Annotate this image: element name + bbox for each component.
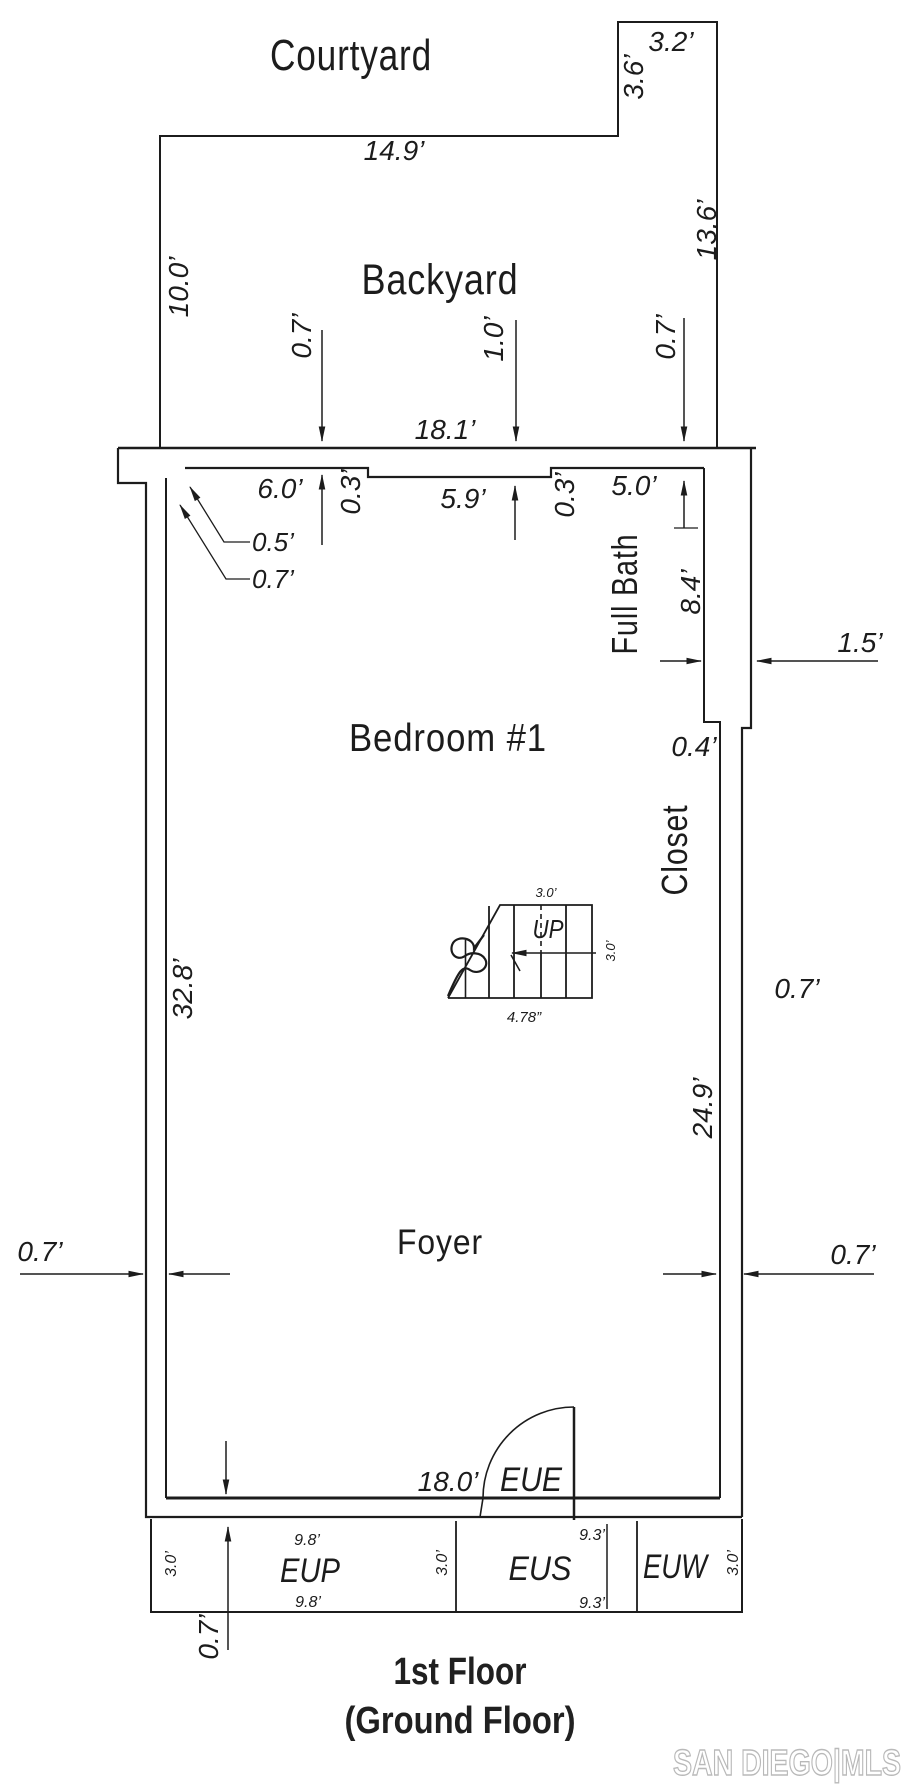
- svg-text:EUS: EUS: [509, 1550, 572, 1588]
- svg-text:0.7’: 0.7’: [830, 1239, 876, 1270]
- svg-text:0.7’: 0.7’: [286, 313, 317, 359]
- svg-text:3.0’: 3.0’: [725, 1550, 742, 1576]
- svg-text:EUE: EUE: [500, 1461, 562, 1499]
- svg-text:18.0’: 18.0’: [418, 1466, 479, 1497]
- svg-text:EUP: EUP: [280, 1552, 340, 1590]
- svg-text:5.9’: 5.9’: [440, 483, 486, 514]
- svg-text:3.0’: 3.0’: [434, 1550, 451, 1576]
- svg-text:3.6’: 3.6’: [618, 54, 649, 100]
- svg-text:0.7’: 0.7’: [774, 973, 820, 1004]
- svg-text:0.3’: 0.3’: [549, 472, 580, 518]
- svg-text:3.0’: 3.0’: [603, 939, 618, 961]
- svg-text:0.4’: 0.4’: [671, 731, 717, 762]
- svg-text:0.7’: 0.7’: [650, 314, 681, 360]
- svg-text:0.3’: 0.3’: [335, 469, 366, 515]
- svg-text:3.0’: 3.0’: [536, 885, 558, 900]
- svg-text:Full Bath: Full Bath: [604, 534, 645, 655]
- svg-text:9.3’: 9.3’: [579, 1595, 605, 1612]
- svg-text:24.9’: 24.9’: [687, 1077, 718, 1139]
- svg-text:0.5’: 0.5’: [252, 527, 295, 557]
- svg-text:1.5’: 1.5’: [837, 627, 883, 658]
- svg-text:0.7’: 0.7’: [252, 564, 295, 594]
- svg-text:3.2’: 3.2’: [648, 26, 694, 57]
- svg-text:SAN DIEGO|MLS: SAN DIEGO|MLS: [673, 1742, 901, 1784]
- svg-text:EUW: EUW: [643, 1548, 709, 1586]
- svg-text:4.78”: 4.78”: [507, 1009, 542, 1026]
- svg-text:13.6’: 13.6’: [691, 199, 722, 260]
- svg-text:(Ground Floor): (Ground Floor): [345, 1700, 576, 1742]
- svg-text:14.9’: 14.9’: [364, 135, 425, 166]
- svg-text:5.0’: 5.0’: [611, 470, 657, 501]
- svg-text:32.8’: 32.8’: [167, 958, 198, 1019]
- svg-text:UP: UP: [533, 914, 565, 944]
- svg-text:9.3’: 9.3’: [579, 1527, 605, 1544]
- svg-text:9.8’: 9.8’: [295, 1594, 321, 1611]
- svg-text:Foyer: Foyer: [397, 1223, 483, 1262]
- svg-text:1st Floor: 1st Floor: [394, 1651, 527, 1693]
- svg-text:1.0’: 1.0’: [478, 316, 509, 362]
- svg-text:6.0’: 6.0’: [257, 473, 303, 504]
- svg-text:Closet: Closet: [654, 805, 695, 896]
- svg-text:0.7’: 0.7’: [193, 1614, 224, 1660]
- svg-text:Backyard: Backyard: [362, 256, 519, 304]
- svg-text:0.7’: 0.7’: [17, 1236, 63, 1267]
- svg-text:Bedroom #1: Bedroom #1: [349, 717, 547, 760]
- svg-text:10.0’: 10.0’: [163, 256, 194, 317]
- svg-text:Courtyard: Courtyard: [270, 31, 432, 80]
- svg-text:8.4’: 8.4’: [675, 569, 706, 615]
- svg-text:9.8’: 9.8’: [294, 1532, 320, 1549]
- svg-text:18.1’: 18.1’: [415, 414, 476, 445]
- svg-text:3.0’: 3.0’: [163, 1551, 180, 1577]
